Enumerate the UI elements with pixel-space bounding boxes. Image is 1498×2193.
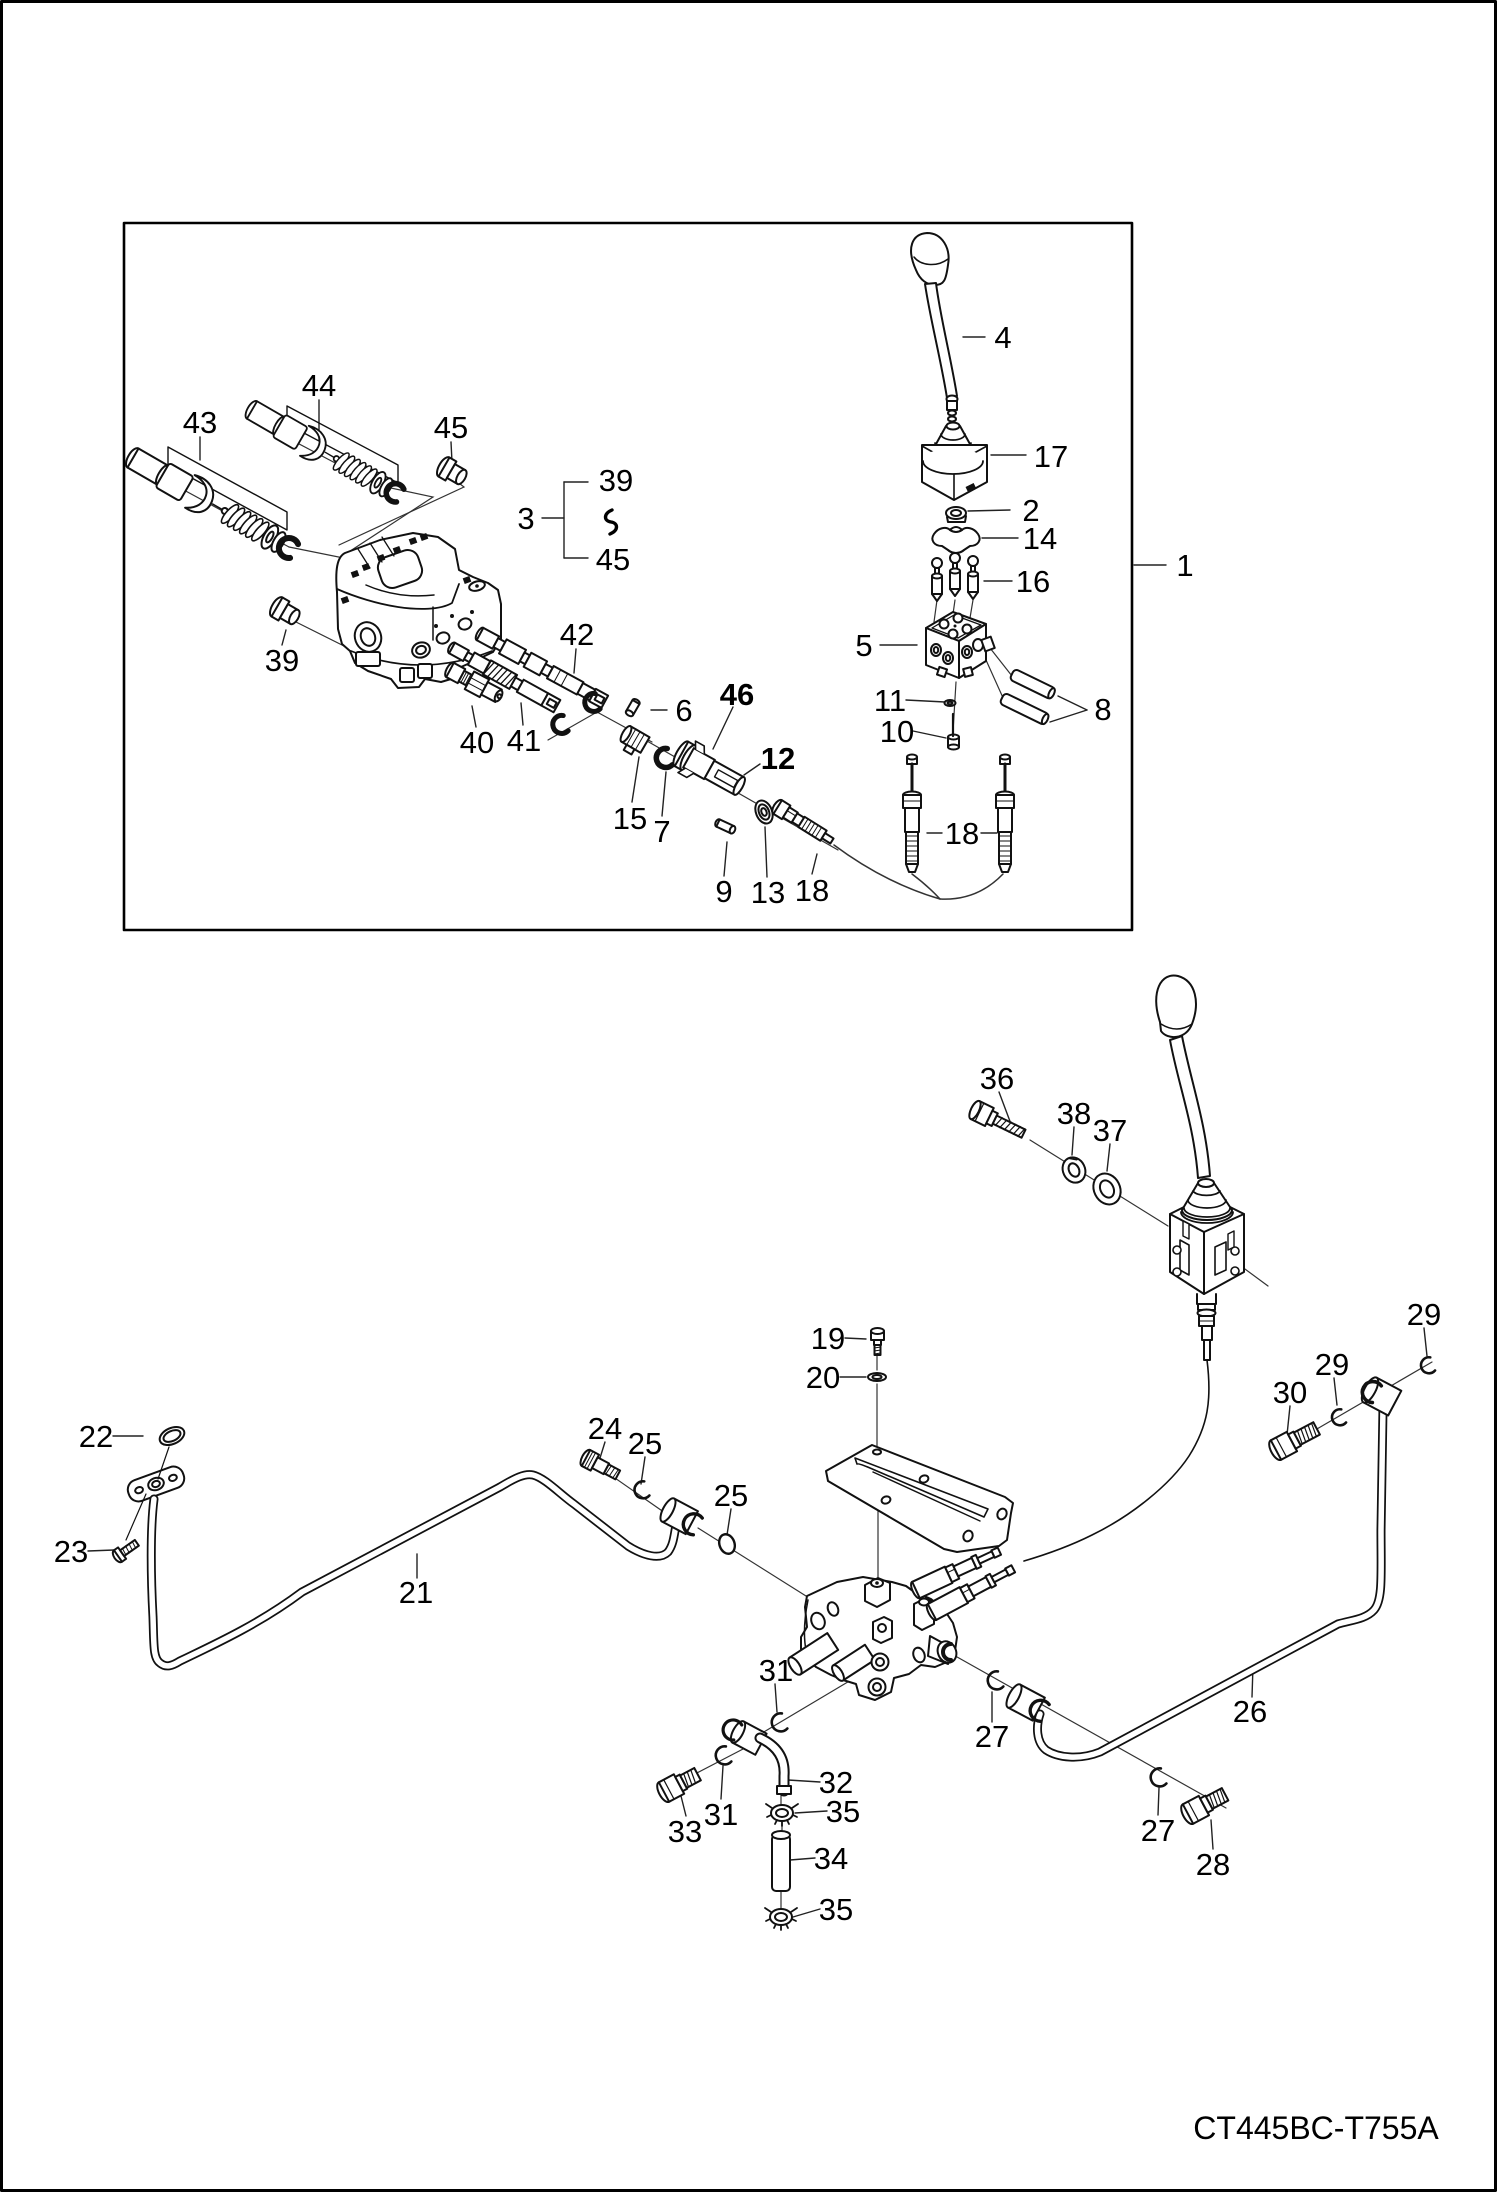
svg-text:34: 34 bbox=[814, 1841, 848, 1876]
svg-text:10: 10 bbox=[880, 714, 914, 749]
svg-text:35: 35 bbox=[819, 1892, 853, 1927]
svg-text:29: 29 bbox=[1407, 1297, 1441, 1332]
svg-text:8: 8 bbox=[1094, 692, 1111, 727]
svg-text:15: 15 bbox=[613, 801, 647, 836]
svg-text:25: 25 bbox=[714, 1478, 748, 1513]
svg-text:9: 9 bbox=[715, 874, 732, 909]
svg-text:27: 27 bbox=[1141, 1813, 1175, 1848]
svg-text:22: 22 bbox=[79, 1419, 113, 1454]
svg-text:26: 26 bbox=[1233, 1694, 1267, 1729]
svg-text:24: 24 bbox=[588, 1411, 622, 1446]
svg-text:13: 13 bbox=[751, 875, 785, 910]
svg-text:12: 12 bbox=[761, 741, 795, 776]
svg-text:35: 35 bbox=[826, 1794, 860, 1829]
svg-text:29: 29 bbox=[1315, 1347, 1349, 1382]
svg-text:7: 7 bbox=[653, 814, 670, 849]
svg-text:42: 42 bbox=[560, 617, 594, 652]
svg-text:19: 19 bbox=[811, 1321, 845, 1356]
svg-text:39: 39 bbox=[265, 643, 299, 678]
svg-text:45: 45 bbox=[434, 410, 468, 445]
svg-text:30: 30 bbox=[1273, 1375, 1307, 1410]
svg-text:20: 20 bbox=[806, 1360, 840, 1395]
svg-text:40: 40 bbox=[460, 725, 494, 760]
svg-text:44: 44 bbox=[302, 368, 336, 403]
svg-text:27: 27 bbox=[975, 1719, 1009, 1754]
svg-text:28: 28 bbox=[1196, 1847, 1230, 1882]
svg-text:31: 31 bbox=[759, 1653, 793, 1688]
svg-text:23: 23 bbox=[54, 1534, 88, 1569]
svg-text:38: 38 bbox=[1057, 1096, 1091, 1131]
svg-text:31: 31 bbox=[704, 1797, 738, 1832]
svg-text:41: 41 bbox=[507, 723, 541, 758]
svg-text:21: 21 bbox=[399, 1575, 433, 1610]
svg-text:14: 14 bbox=[1023, 521, 1057, 556]
svg-text:11: 11 bbox=[874, 683, 906, 718]
svg-text:36: 36 bbox=[980, 1061, 1014, 1096]
svg-text:5: 5 bbox=[855, 628, 872, 663]
svg-text:16: 16 bbox=[1016, 564, 1050, 599]
svg-text:6: 6 bbox=[675, 693, 692, 728]
svg-text:18: 18 bbox=[795, 873, 829, 908]
svg-text:17: 17 bbox=[1034, 439, 1068, 474]
svg-text:33: 33 bbox=[668, 1814, 702, 1849]
svg-text:4: 4 bbox=[994, 320, 1011, 355]
svg-text:37: 37 bbox=[1093, 1113, 1127, 1148]
svg-text:25: 25 bbox=[628, 1426, 662, 1461]
svg-text:43: 43 bbox=[183, 405, 217, 440]
svg-text:CT445BC-T755A: CT445BC-T755A bbox=[1193, 2110, 1439, 2146]
svg-text:18: 18 bbox=[945, 816, 979, 851]
svg-text:45: 45 bbox=[596, 542, 630, 577]
svg-text:1: 1 bbox=[1176, 548, 1193, 583]
svg-text:3: 3 bbox=[517, 501, 534, 536]
svg-text:46: 46 bbox=[720, 677, 754, 712]
svg-text:39: 39 bbox=[599, 463, 633, 498]
